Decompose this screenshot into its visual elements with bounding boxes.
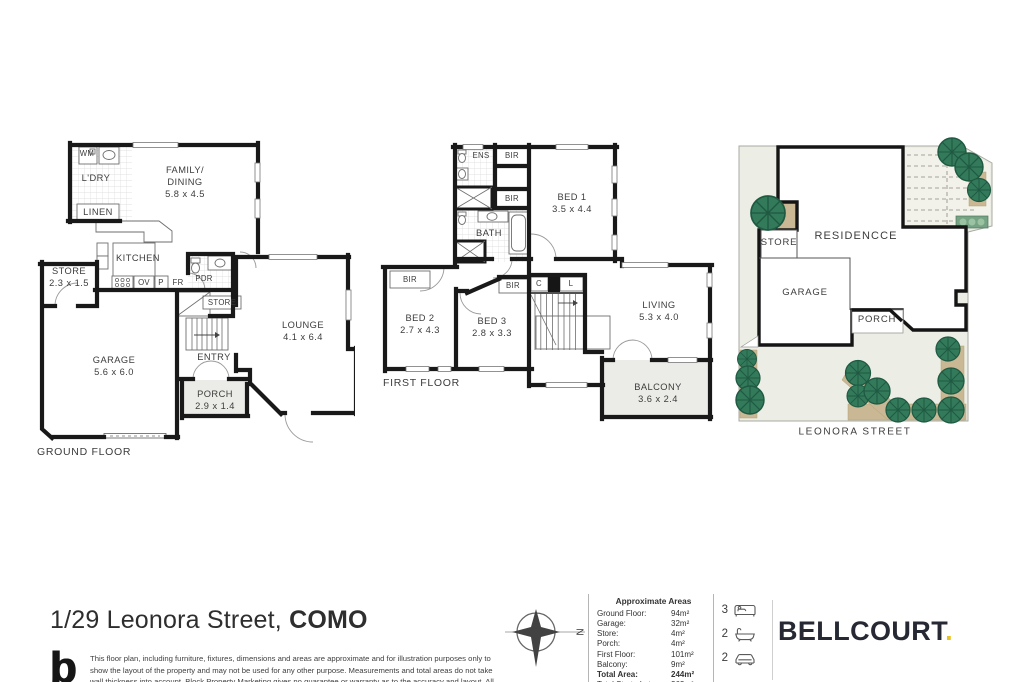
site-label-store: STORE — [761, 237, 798, 249]
car-icon — [733, 650, 757, 667]
compass-icon: N — [503, 603, 595, 675]
room-label-garage: GARAGE 5.6 x 6.0 — [93, 354, 135, 378]
room-label-living: LIVING 5.3 x 4.0 — [639, 299, 679, 323]
areas-row-total: Total Area:244m² — [597, 670, 710, 680]
room-label-family-dining: FAMILY/ DINING 5.8 x 4.5 — [165, 164, 205, 200]
room-label-c: C — [536, 279, 542, 289]
site-label-street: LEONORA STREET — [799, 426, 912, 439]
title-suburb: COMO — [289, 606, 368, 634]
feature-bathrooms: 2 — [720, 625, 764, 643]
room-label-bir-bed3: BIR — [506, 281, 520, 291]
compass-north-label: N — [573, 628, 584, 635]
room-label-bir-top: BIR — [505, 151, 519, 161]
bed-icon — [733, 602, 757, 619]
room-label-kitchen: KITCHEN — [116, 252, 160, 264]
room-label-fr: FR — [173, 278, 184, 288]
room-label-bir-left: BIR — [403, 275, 417, 285]
room-label-bir-mid: BIR — [505, 194, 519, 204]
room-label-linen: LINEN — [83, 206, 113, 218]
room-label-ldry: L'DRY — [82, 172, 111, 184]
room-label-entry: ENTRY — [197, 351, 231, 363]
areas-row-ground-floor: Ground Floor:94m² — [597, 609, 710, 619]
room-label-bed3: BED 3 2.8 x 3.3 — [472, 315, 512, 339]
room-label-store: STORE 2.3 x 1.5 — [49, 265, 89, 289]
areas-row-store: Store:4m² — [597, 629, 710, 639]
room-label-wm: WM — [80, 149, 94, 159]
room-label-bath: BATH — [476, 227, 502, 239]
areas-row-balcony: Balcony:9m² — [597, 660, 710, 670]
bath-icon — [733, 626, 757, 643]
first-floor-label: FIRST FLOOR — [383, 377, 460, 389]
ground-floor-label: GROUND FLOOR — [37, 446, 131, 458]
areas-header: Approximate Areas — [597, 596, 710, 607]
logo-dot: . — [945, 616, 953, 646]
disclaimer-text: This floor plan, including furniture, fi… — [90, 653, 494, 682]
divider — [772, 600, 773, 680]
block-property-logo: b — [50, 648, 77, 682]
site-plan — [725, 132, 1020, 447]
room-label-ov: OV — [138, 278, 150, 288]
divider — [588, 594, 589, 682]
site-label-garage: GARAGE — [782, 287, 827, 299]
room-label-pdr: PDR — [195, 274, 212, 284]
room-label-bed2: BED 2 2.7 x 4.3 — [400, 312, 440, 336]
room-label-porch: PORCH 2.9 x 1.4 — [195, 388, 235, 412]
areas-row-porch: Porch:4m² — [597, 639, 710, 649]
page-title: 1/29 Leonora Street, COMO — [50, 606, 368, 635]
areas-row-garage: Garage:32m² — [597, 619, 710, 629]
site-label-residence: RESIDENCCE — [814, 229, 897, 243]
divider — [713, 594, 714, 682]
floorplan-page: WM L'DRY LINEN FAMILY/ DINING 5.8 x 4.5 … — [0, 0, 1024, 682]
feature-cars: 2 — [720, 649, 764, 667]
areas-row-first-floor: First Floor:101m² — [597, 650, 710, 660]
room-label-p: P — [158, 278, 164, 288]
room-label-l: L — [569, 279, 574, 289]
room-label-bed1: BED 1 3.5 x 4.4 — [552, 191, 592, 215]
bellcourt-logo: BELLCOURT. — [778, 618, 953, 645]
property-features: 3 2 2 — [720, 601, 764, 673]
feature-bedrooms: 3 — [720, 601, 764, 619]
site-label-porch: PORCH — [858, 314, 896, 326]
title-street: 1/29 Leonora Street, — [50, 606, 289, 634]
room-label-ens: ENS — [473, 151, 490, 161]
room-label-balcony: BALCONY 3.6 x 2.4 — [634, 381, 682, 405]
room-label-store-under-stairs: STORE — [208, 298, 236, 308]
areas-table: Approximate Areas Ground Floor:94m² Gara… — [597, 596, 710, 682]
room-label-lounge: LOUNGE 4.1 x 6.4 — [282, 319, 324, 343]
